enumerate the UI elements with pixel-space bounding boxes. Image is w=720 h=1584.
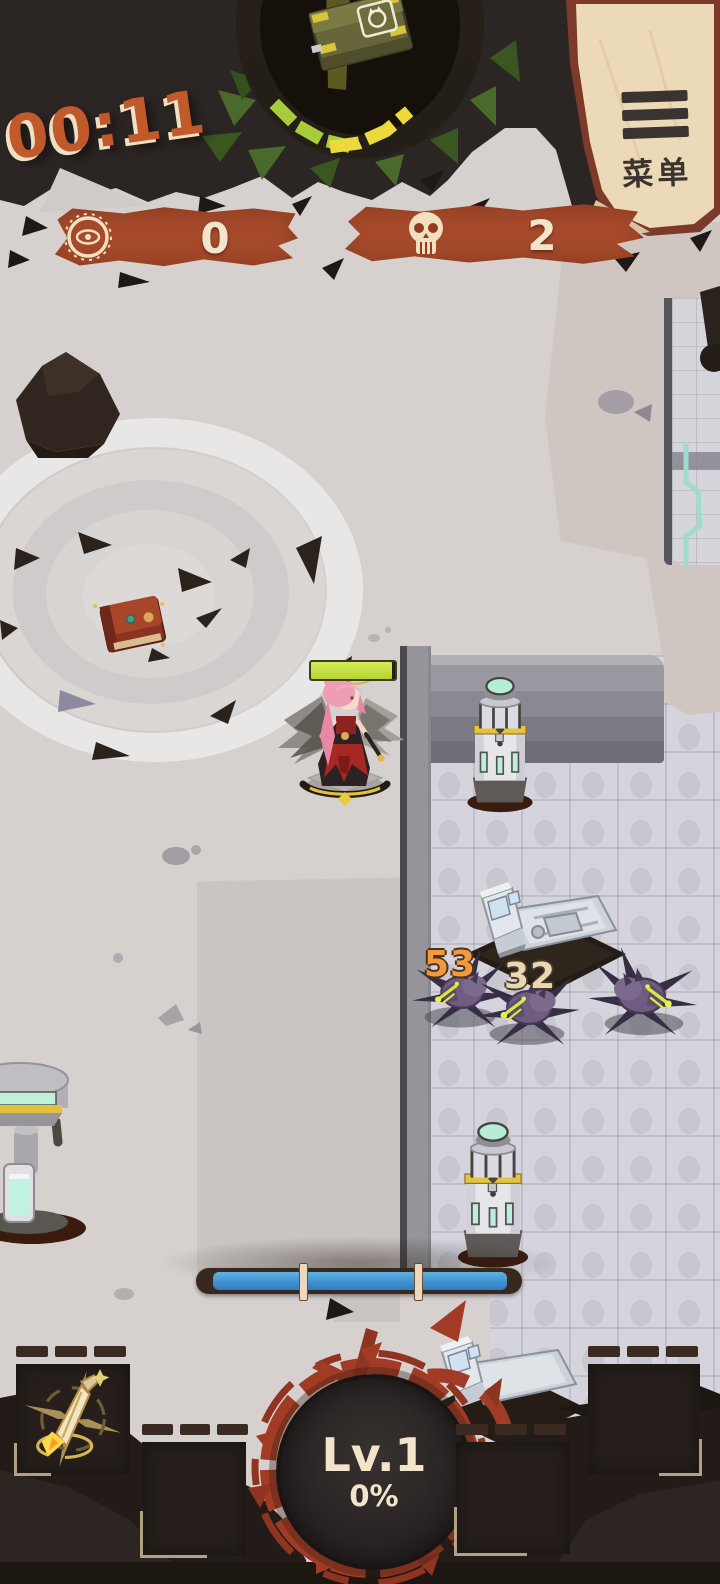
player-hp-fill <box>311 662 392 679</box>
kill-counter: 2 <box>342 203 644 265</box>
skill-level-pips <box>16 1346 132 1357</box>
damage-number: 32 <box>504 956 556 997</box>
skill-level-pips <box>456 1424 572 1435</box>
menu-button[interactable]: 菜单 <box>594 82 718 195</box>
currency-counter: 0 <box>50 206 298 268</box>
player-hp-bar <box>309 660 397 681</box>
damage-number: 53 <box>424 944 476 985</box>
level-label: Lv.1 <box>321 1431 426 1479</box>
level-badge: Lv.1 0% <box>276 1374 472 1570</box>
xp-bar-divider <box>299 1263 308 1301</box>
skill-slot-2[interactable] <box>142 1424 248 1556</box>
defense-tower <box>462 667 538 815</box>
spider-enemy <box>586 938 702 1042</box>
menu-label: 菜单 <box>596 146 717 195</box>
xp-bar-fill <box>213 1272 507 1290</box>
skull-icon <box>400 208 452 262</box>
xp-bar <box>196 1268 522 1294</box>
level-percent: 0% <box>349 1479 398 1513</box>
game-viewport: 53 32 <box>0 0 720 1584</box>
skill-slot-4[interactable] <box>456 1424 572 1554</box>
skill-slot-3[interactable] <box>588 1346 702 1474</box>
hamburger-icon <box>621 90 687 103</box>
supply-drop-indicator <box>190 0 550 192</box>
xp-bar-divider <box>414 1263 423 1301</box>
kill-value: 2 <box>507 211 577 260</box>
hamburger-icon <box>623 126 689 139</box>
skill-slot-1[interactable] <box>16 1346 132 1474</box>
currency-value: 0 <box>180 214 250 263</box>
skill-level-pips <box>142 1424 248 1435</box>
skill-level-pips <box>588 1346 702 1357</box>
extractor-tower <box>0 1046 98 1246</box>
hamburger-icon <box>622 108 688 121</box>
eye-coin-icon <box>64 213 112 261</box>
